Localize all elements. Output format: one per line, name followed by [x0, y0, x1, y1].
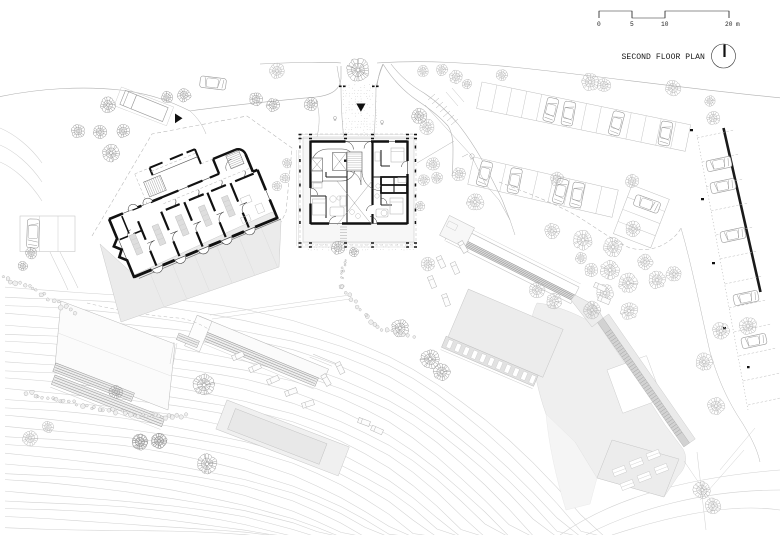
svg-text:m: m: [736, 21, 740, 28]
svg-text:5: 5: [630, 21, 634, 28]
svg-text:SECOND FLOOR PLAN: SECOND FLOOR PLAN: [622, 53, 706, 62]
svg-text:10: 10: [661, 21, 669, 28]
svg-text:0: 0: [597, 21, 601, 28]
svg-text:20: 20: [725, 21, 733, 28]
